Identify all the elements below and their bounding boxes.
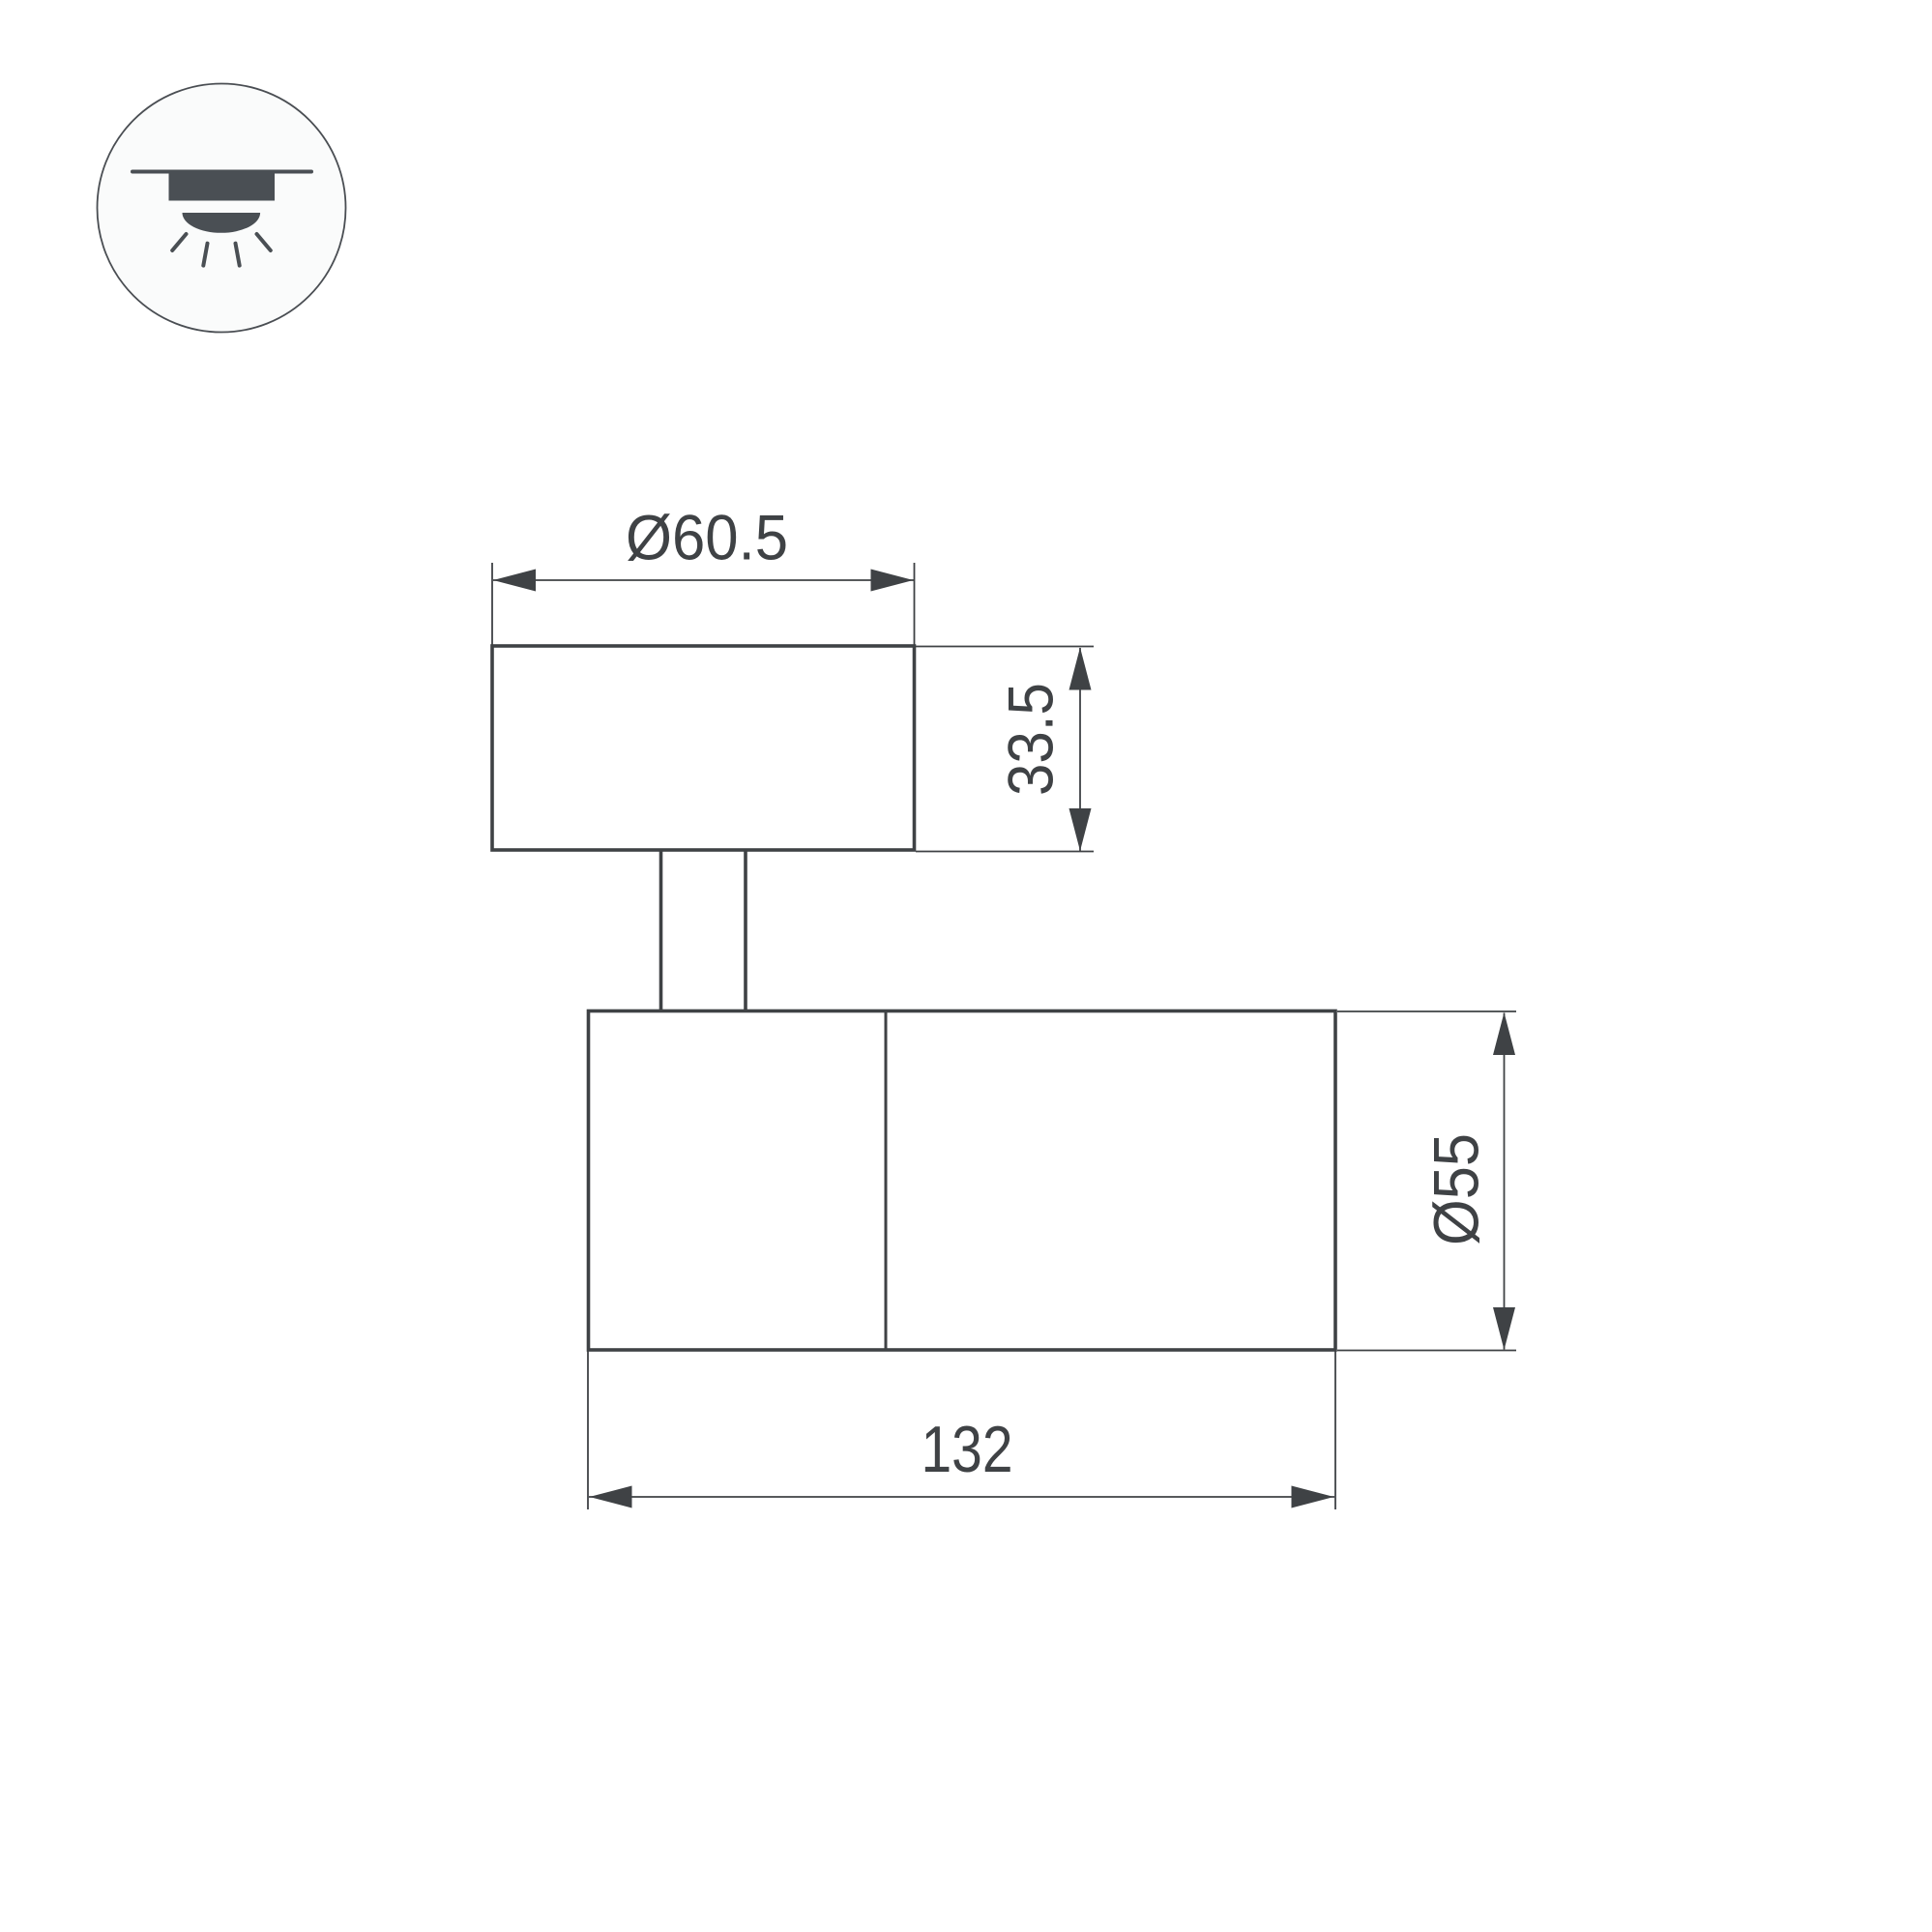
svg-text:Ø55: Ø55: [1420, 1133, 1492, 1245]
svg-text:Ø60.5: Ø60.5: [626, 502, 788, 573]
svg-text:33.5: 33.5: [995, 683, 1067, 796]
svg-text:132: 132: [922, 1413, 1013, 1486]
